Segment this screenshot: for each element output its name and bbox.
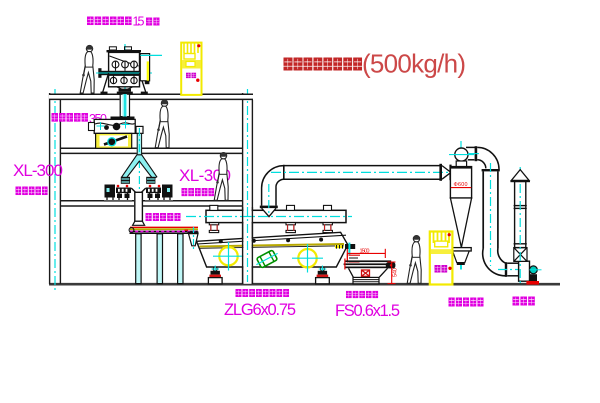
svg-text:ZLG6x0.75: ZLG6x0.75	[224, 301, 296, 319]
svg-text:Φ600: Φ600	[454, 182, 468, 188]
svg-text:1500: 1500	[360, 249, 370, 255]
svg-text:FS0.6x1.5: FS0.6x1.5	[335, 302, 400, 320]
svg-text:XL-300: XL-300	[13, 161, 63, 180]
svg-text:1.5: 1.5	[133, 15, 145, 29]
svg-text:540: 540	[393, 268, 399, 277]
svg-text:(500kg/h): (500kg/h)	[362, 49, 466, 79]
